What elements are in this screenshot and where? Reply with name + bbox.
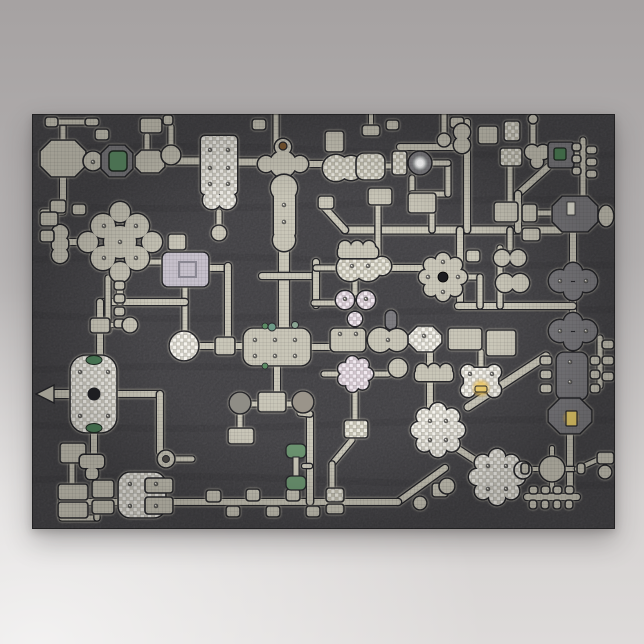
poster-vignette <box>32 114 615 529</box>
wall-background <box>0 0 644 644</box>
dungeon-map-poster <box>32 114 615 529</box>
dungeon-map <box>32 114 615 529</box>
